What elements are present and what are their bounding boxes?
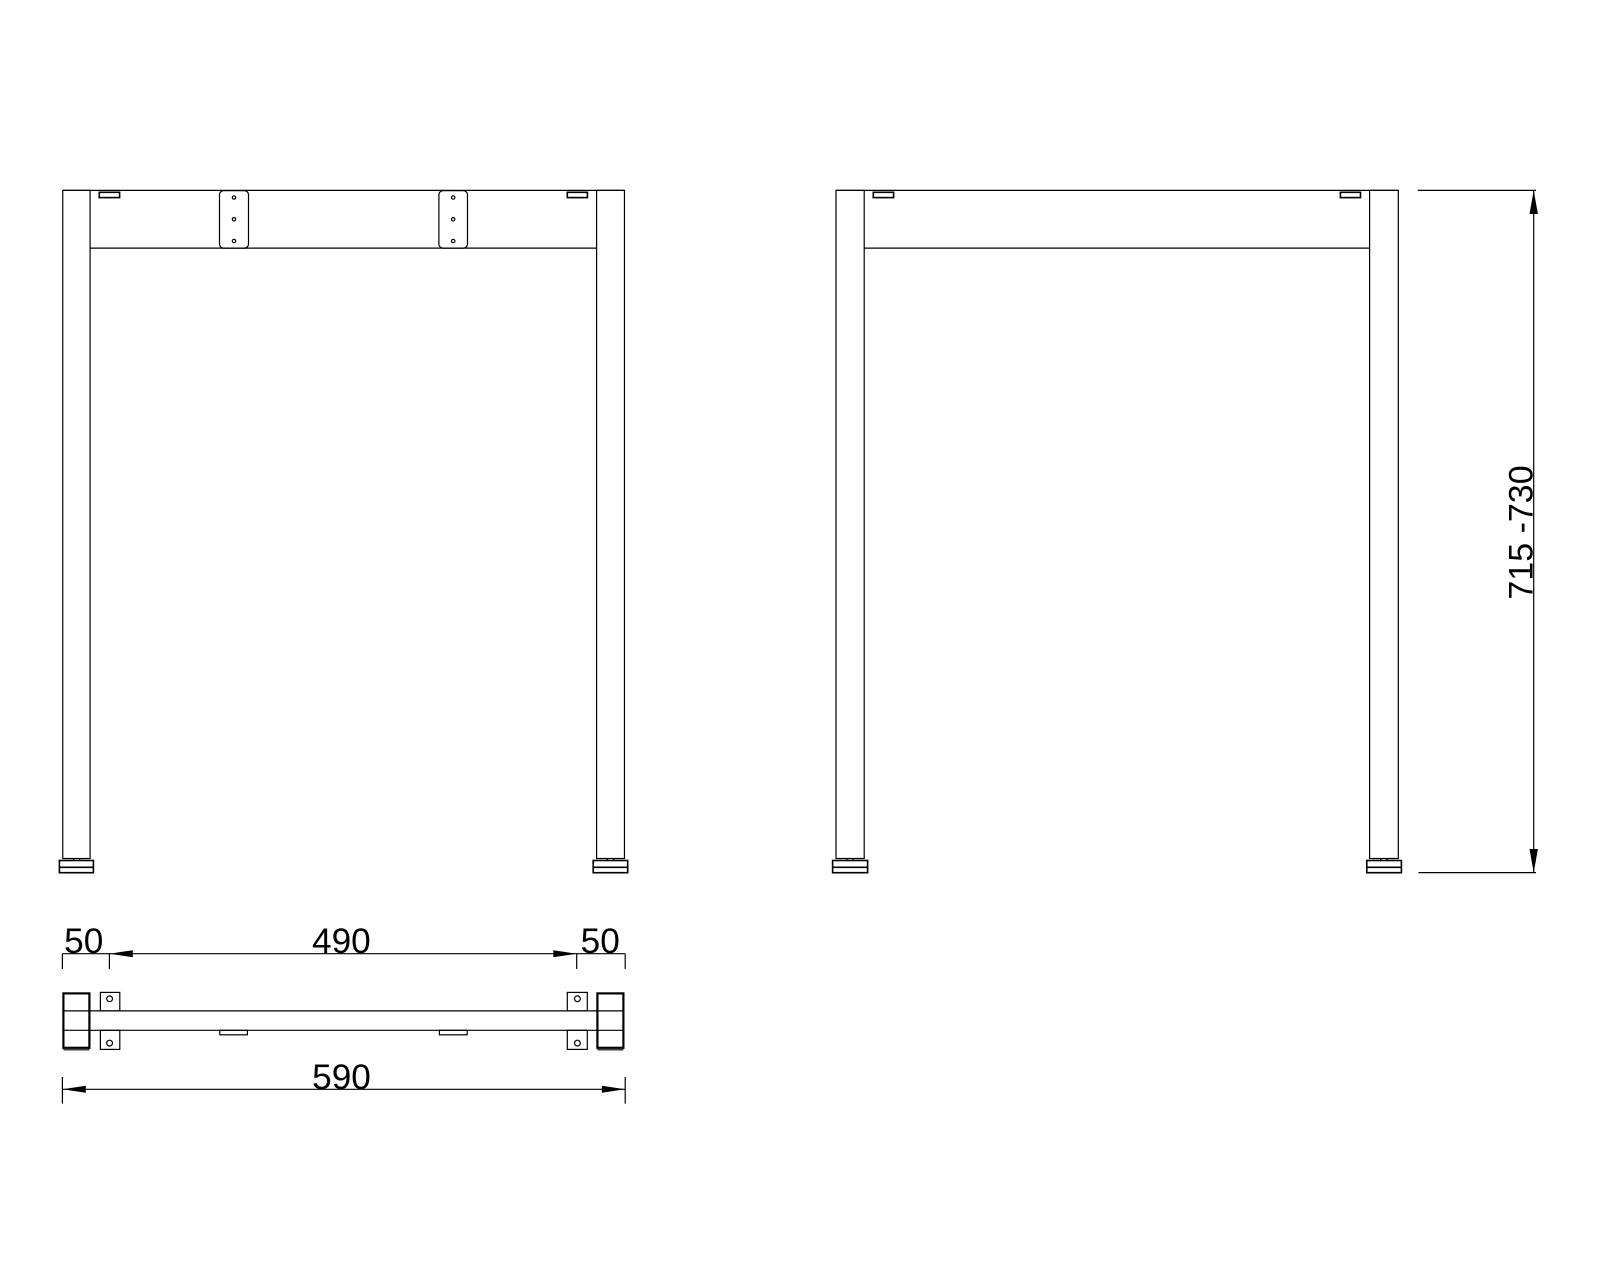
svg-text:590: 590 [312,1058,371,1097]
svg-text:50: 50 [581,922,620,961]
svg-text:715 -730: 715 -730 [1502,465,1540,599]
svg-text:490: 490 [312,922,371,961]
svg-text:50: 50 [64,922,103,961]
